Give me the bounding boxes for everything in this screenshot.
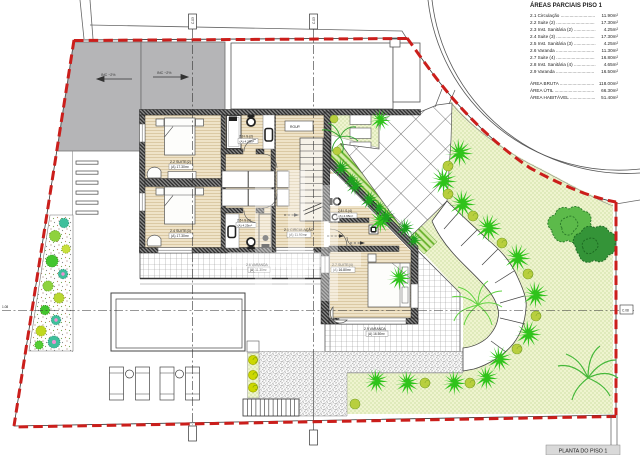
- svg-text:C.03: C.03: [191, 17, 195, 24]
- svg-text:2.2 Suite (2) ................: 2.2 Suite (2) ..........................…: [530, 20, 595, 25]
- svg-text:ÁREA BRUTA ...................: ÁREA BRUTA ...........................: [530, 80, 594, 86]
- svg-text:(A) 16.50m²: (A) 16.50m²: [368, 332, 385, 336]
- svg-text:2.9 VARANDA: 2.9 VARANDA: [364, 327, 387, 331]
- svg-text:2.1 Circulação ...............: 2.1 Circulação .........................…: [530, 13, 595, 18]
- svg-text:2.4 Suite (3) ................: 2.4 Suite (3) ..........................…: [530, 34, 595, 39]
- svg-text:4.65m²: 4.65m²: [604, 62, 619, 67]
- svg-text:ÁREA HABITÁVEL ...............: ÁREA HABITÁVEL ....................: [530, 94, 595, 100]
- svg-text:(A) 4.65m²: (A) 4.65m²: [339, 214, 354, 218]
- svg-text:2.6 Varanda ..................: 2.6 Varanda ............................…: [530, 48, 594, 53]
- svg-text:66.30m²: 66.30m²: [601, 88, 618, 93]
- svg-text:C.08: C.08: [622, 309, 629, 313]
- svg-text:2.5 Inst. Sanitária (3) ......: 2.5 Inst. Sanitária (3) ................…: [530, 41, 596, 46]
- svg-text:118.00m²: 118.00m²: [599, 81, 619, 86]
- svg-text:2.4 SUITE(3): 2.4 SUITE(3): [170, 229, 191, 233]
- svg-text:4.25m²: 4.25m²: [604, 41, 619, 46]
- svg-text:2.2 SUITE(2): 2.2 SUITE(2): [170, 160, 191, 164]
- svg-text:1.08: 1.08: [2, 305, 8, 309]
- svg-text:2.8 I.S.(4): 2.8 I.S.(4): [338, 209, 352, 213]
- svg-text:17.30m²: 17.30m²: [601, 20, 618, 25]
- svg-text:ÁREA ÚTIL ....................: ÁREA ÚTIL ..............................…: [530, 87, 594, 93]
- svg-text:(A) 17.30m²: (A) 17.30m²: [171, 234, 190, 238]
- svg-text:51.40m²: 51.40m²: [601, 95, 618, 100]
- svg-text:11.30m²: 11.30m²: [601, 48, 618, 53]
- svg-text:17.30m²: 17.30m²: [601, 34, 618, 39]
- svg-text:INC ~2%: INC ~2%: [157, 71, 172, 75]
- svg-text:16.80m²: 16.80m²: [601, 55, 618, 60]
- svg-text:11.90m²: 11.90m²: [601, 13, 618, 18]
- svg-text:PLANTA DO PISO 1: PLANTA DO PISO 1: [559, 449, 608, 455]
- svg-text:2.3 Inst. Sanitária (2) ......: 2.3 Inst. Sanitária (2) ................…: [530, 27, 596, 32]
- svg-text:C.03: C.03: [312, 17, 316, 24]
- svg-text:16.50m²: 16.50m²: [601, 69, 618, 74]
- svg-text:(A) 17.30m²: (A) 17.30m²: [171, 165, 190, 169]
- svg-text:2.7 Suite (4) ................: 2.7 Suite (4) ..........................…: [530, 55, 595, 60]
- svg-text:4.25m²: 4.25m²: [604, 27, 619, 32]
- svg-text:2.3 I.S.(2): 2.3 I.S.(2): [239, 135, 253, 139]
- svg-text:2.9 Varanda ..................: 2.9 Varanda ............................…: [530, 69, 594, 74]
- svg-text:ÁREAS PARCIAIS PISO 1: ÁREAS PARCIAIS PISO 1: [530, 2, 603, 9]
- svg-text:(A) 4.25m²: (A) 4.25m²: [238, 224, 253, 228]
- svg-text:ROUP.: ROUP.: [290, 125, 301, 129]
- svg-text:2.8 Inst. Sanitária (4) ......: 2.8 Inst. Sanitária (4) ................…: [530, 62, 596, 67]
- svg-text:INC ~2%: INC ~2%: [101, 73, 116, 77]
